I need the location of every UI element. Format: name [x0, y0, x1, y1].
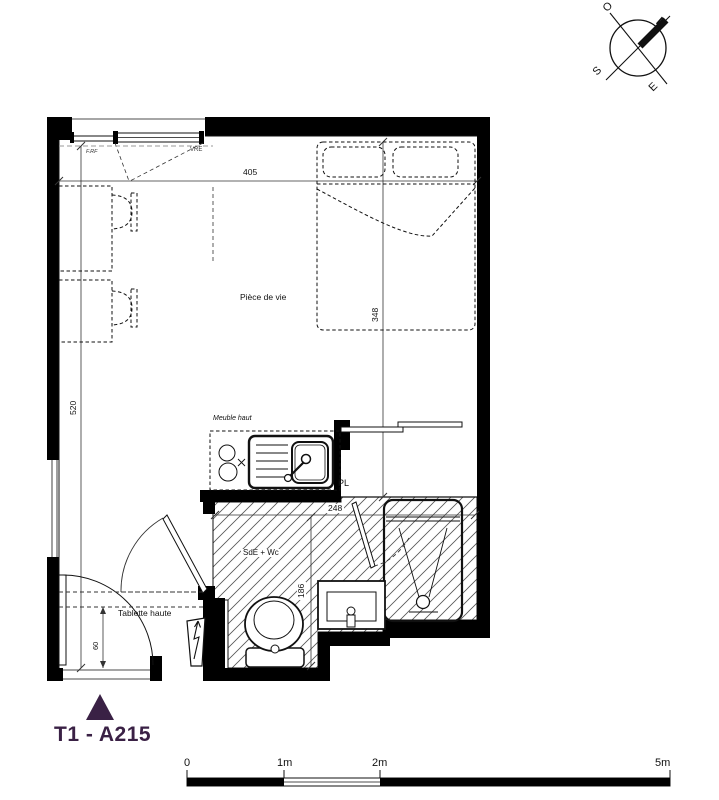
kitchenette — [210, 431, 340, 490]
floor-plan-page: O N S E F.RF VRE 405 520 348 248 186 60 … — [0, 0, 719, 800]
dim-living-depth: 520 — [69, 401, 78, 415]
closet-sliding-doors — [341, 422, 462, 432]
living-room-label: Pièce de vie — [240, 293, 286, 302]
bathroom-door — [121, 515, 207, 593]
entry-door — [59, 575, 153, 665]
toilet — [245, 597, 304, 667]
unit-code-label: T1 - A215 — [54, 724, 151, 745]
pillow-left — [323, 147, 385, 177]
scale-bar — [187, 770, 670, 786]
hob-1 — [219, 445, 235, 461]
scale-tick-2m: 2m — [372, 758, 387, 769]
shutter-tag-label: VRE — [190, 147, 202, 153]
washbasin-vanity — [318, 581, 385, 629]
dim-bathroom-width: 248 — [326, 504, 344, 513]
unit-marker-triangle — [86, 694, 114, 720]
scale-tick-0: 0 — [184, 758, 190, 769]
pillow-right — [393, 147, 458, 177]
high-shelf-label: Tablette haute — [118, 609, 171, 618]
bed — [317, 142, 475, 330]
desk-1 — [59, 186, 112, 271]
dim-bed-zone-depth: 348 — [371, 308, 380, 322]
scale-tick-5m: 5m — [655, 758, 670, 769]
basin-faucet — [347, 607, 355, 615]
electrical-panel — [187, 618, 205, 666]
shower-drain — [417, 596, 430, 609]
desks-and-chairs — [59, 186, 137, 342]
chair-2 — [112, 291, 132, 325]
scale-tick-1m: 1m — [277, 758, 292, 769]
hob-2 — [219, 463, 237, 481]
dim-bathroom-depth: 186 — [297, 582, 306, 600]
upper-cabinet-label: Meuble haut — [213, 415, 252, 422]
desk-2 — [59, 280, 112, 342]
closet-label: PL — [338, 479, 349, 488]
window-tag-label: F.RF — [86, 150, 98, 156]
blanket-fold — [317, 188, 475, 236]
bathroom-label: SdE + Wc — [241, 549, 281, 557]
window — [59, 119, 213, 262]
chair-1 — [112, 195, 132, 229]
dim-shelf-depth: 60 — [92, 642, 100, 650]
floor-plan-drawing — [0, 0, 719, 800]
dim-living-width: 405 — [243, 168, 257, 177]
